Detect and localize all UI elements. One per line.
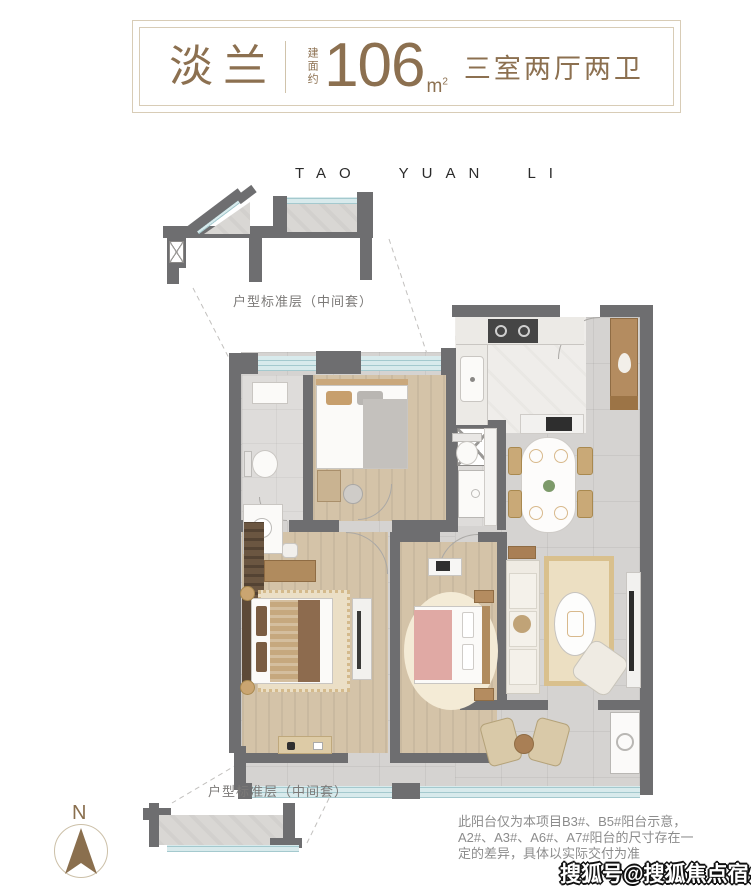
console-item-2 [313,742,323,750]
compass-north-label: N [72,802,86,825]
plate-4 [554,506,568,520]
washing-machine [610,712,640,774]
kitchen-faucet [470,377,475,382]
compass [54,824,108,878]
master-pillow-2 [256,642,267,672]
entry-shoe-cabinet-lower [610,396,638,410]
master-blanket-tan [270,600,298,682]
master-blanket-brown [298,600,320,682]
master-tv-stand [352,598,372,680]
coffee-table-tray [567,611,584,637]
top-detail-right-pillar-left [273,196,287,236]
top-detail-right-floor [287,204,357,232]
wall-bedroom3-top-a [400,532,440,542]
compass-arrow-icon [55,825,107,877]
bedroom3-laptop [436,561,450,571]
bottom-detail-floor [159,815,285,845]
wall-top-kitchen-left [452,305,560,317]
floorplan-page: 淡兰 建面约 106 m2 三室两厅两卫 TAO YUAN LI 户型标准层（中… [0,0,751,890]
bottom-detail-pillar-right [283,803,295,843]
bedroom3-nightstand-1 [474,590,494,603]
dining-table [521,437,576,533]
bedroom3-nightstand-2 [474,688,494,701]
top-detail-right-pillar-right-lower [360,238,372,280]
bedroom3-pillow-2 [462,644,474,670]
bathroom1-shelf [252,382,288,404]
bathroom1-toilet [252,450,278,478]
top-detail-right-pillar-right [357,192,373,238]
bathroom1-toilet-tank [244,451,252,477]
shoe-cabinet-decor [618,353,631,373]
bedroom2-pillow-1 [326,391,352,405]
wall-master-balcony-b [390,753,498,763]
wall-living-balcony-b [598,700,642,710]
bedroom3-blanket [414,610,452,680]
wall-bathroom1-bedroom2 [303,375,313,520]
sofa-throw-pillow [513,615,531,633]
master-dresser [264,560,316,582]
bathroom2-toilet [456,441,478,465]
top-detail-pillar-left-lower [167,268,179,284]
master-pillow-1 [256,606,267,636]
washer-drum [616,733,634,751]
master-pouf-1 [240,586,255,601]
wall-mid-b [289,520,339,532]
dining-chair-2 [577,490,593,518]
bottom-detail-label: 户型标准层（中间套） [208,781,348,800]
dining-chair-1 [577,447,593,475]
balcony-console [278,736,332,754]
plate-1 [529,449,543,463]
entry-shoe-cabinet [610,318,638,404]
sofa-side-table [508,546,536,559]
master-tv [357,611,361,669]
bedroom2-chair [343,484,363,504]
tv-cabinet [626,572,641,688]
dining-chair-4 [508,490,522,518]
tv-screen [629,591,634,671]
balcony-table [514,734,534,754]
plate-2 [554,449,568,463]
dining-chair-3 [508,447,522,475]
bedroom3-headboard [482,606,490,684]
plate-3 [529,506,543,520]
stove-burner-2 [518,325,530,337]
bedroom2-desk [317,470,341,502]
kitchen-sink [460,356,484,402]
console-item-1 [287,742,295,750]
wall-top-kitchen-right [600,305,644,317]
master-bed-headboard [242,598,251,684]
top-detail-pillar-center [249,238,262,282]
bedroom3-pillow-1 [462,612,474,638]
kitchen-stove [488,319,538,343]
wall-right [640,305,653,795]
stove-burner-1 [495,325,507,337]
top-detail-right-glass [287,197,357,204]
table-centerpiece [543,480,555,492]
top-detail-label: 户型标准层（中间套） [233,291,373,310]
wall-pier-bottom-mid [392,783,420,799]
wall-pier-topleft-b [316,351,361,374]
top-detail-shaft-window [169,241,184,263]
wall-bathroom2-right [497,420,506,530]
bottom-detail-glass [167,845,299,852]
bathroom2-vanity [484,428,497,526]
shower-drain [471,489,480,498]
bedroom2-blanket [363,399,407,468]
sofa-cushion-1 [509,573,537,609]
master-stool [282,543,298,558]
island-cooktop [546,417,572,431]
wall-master-balcony-a [242,753,348,763]
wall-bedroom3-left [390,532,400,753]
wall-left [229,353,241,753]
watermark: 搜狐号@搜狐焦点宿州站 [560,858,751,888]
master-pouf-2 [240,680,255,695]
living-sofa [506,560,540,694]
sofa-cushion-3 [509,649,537,685]
